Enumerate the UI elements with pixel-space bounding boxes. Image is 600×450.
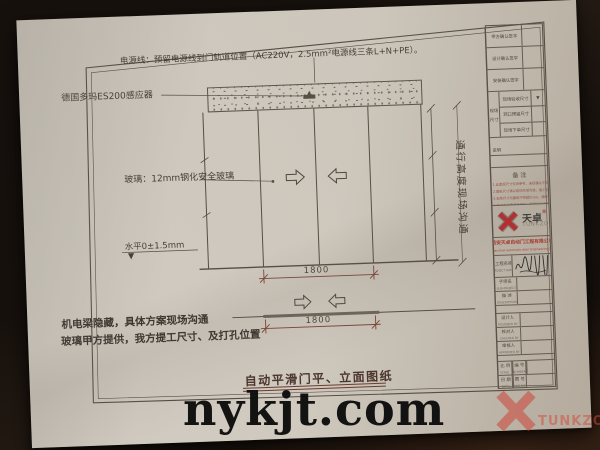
sensor-symbol xyxy=(303,91,315,99)
sub-project-label-en: SUB-PROJECT xyxy=(496,287,516,291)
scale-label: 比 例 xyxy=(500,362,510,369)
slide-arrow-left-icon xyxy=(328,168,347,183)
site-size-group-label: 现场 xyxy=(490,107,499,114)
site-size-group-label: 尺寸 xyxy=(490,116,499,123)
project-name-row: 工程名称 PROJECT NAME xyxy=(494,254,551,278)
description-label-en: DESCRIPTION xyxy=(497,301,517,305)
handwriting-signature xyxy=(513,255,551,276)
remark-row: 说明 以现场实测尺寸为准 xyxy=(490,136,547,156)
dwg-label: 图 号 xyxy=(515,375,525,382)
checker-label: 校对人 xyxy=(502,328,515,335)
site-size-label: 洞口预留尺寸 xyxy=(503,110,529,117)
designer-label-en: DESIGNED BY xyxy=(498,322,518,326)
level-symbol: ▼ xyxy=(128,251,134,260)
date-dwg-row: 日 期 DATE 图 号 DWG NO. xyxy=(499,374,555,389)
drawing-frame xyxy=(80,22,557,406)
checker-label-en: CHECKED BY xyxy=(499,336,518,340)
approver-label-en: APPROVED BY xyxy=(499,350,519,354)
remark-label: 说明 xyxy=(492,144,501,156)
company-row: 西安天卓自动门工程有限公司 Xi'an Tianzhuo automatic d… xyxy=(494,236,551,256)
number-label-en: NUMBER xyxy=(513,370,526,374)
date-label: 日 期 xyxy=(500,376,510,383)
sub-project-label: 子项名 xyxy=(499,278,512,285)
site-size-label: 现场验收尺寸 xyxy=(502,95,528,102)
watermark-text: nykjt.com xyxy=(183,382,445,436)
site-size-label: 现场下单尺寸 xyxy=(503,126,529,133)
site-size-group: 现场 尺寸 现场验收尺寸 ▼ 洞口预留尺寸 现场下单尺寸 xyxy=(488,90,546,138)
project-name-label: 工程名称 xyxy=(494,260,512,267)
designer-label: 设计人 xyxy=(501,314,514,321)
scale-label-en: SCALE xyxy=(500,371,509,375)
plan-arrow-left-icon xyxy=(329,294,345,308)
company-name-en: Xi'an Tianzhuo automatic door Engineerin… xyxy=(494,246,551,252)
signature-row: 安装确认签字 xyxy=(487,68,544,92)
signature-label: 安装确认签字 xyxy=(492,76,518,83)
approver-label: 审核人 xyxy=(502,342,515,349)
check-mark: ▼ xyxy=(536,95,540,100)
elevation-door-lines xyxy=(194,103,459,269)
paper-sheet: 电源线：预留电源线到门轨道位置（AC220V，2.5mm²电源线三条L+N+PE… xyxy=(16,0,591,448)
dim-1800-plan: 1800 xyxy=(305,315,331,326)
signature-label: 甲方确认签字 xyxy=(491,32,517,39)
description-label: 描 述 xyxy=(501,292,511,299)
logo-row: 天卓® TUNKZO xyxy=(492,204,549,238)
corner-logo-icon xyxy=(492,388,540,434)
project-name-label-en: PROJECT NAME xyxy=(494,269,513,273)
dim-1800-elevation: 1800 xyxy=(304,265,330,276)
logo-en: TUNKZO xyxy=(522,221,549,228)
notes-box: 备 注 1.此图纸尺寸仅供参考，未经确认不得施工。 2.图纸尺寸请以现场实测为准… xyxy=(491,166,548,206)
plan-view-lines xyxy=(232,309,475,318)
plan-arrow-right-icon xyxy=(295,295,311,309)
signature-row: 甲方确认签字 xyxy=(486,24,543,48)
slide-arrow-right-icon xyxy=(286,170,305,185)
photo-backdrop: 电源线：预留电源线到门轨道位置（AC220V，2.5mm²电源线三条L+N+PE… xyxy=(0,0,600,450)
registered-mark: ® xyxy=(542,209,547,215)
number-label: 编 号 xyxy=(514,361,524,368)
tunkzo-logo-icon xyxy=(496,209,521,234)
corner-watermark-brand: TUNKZO xyxy=(538,414,600,429)
site-size-row: 现场下单尺寸 xyxy=(500,121,546,138)
signature-label: 设计确认签字 xyxy=(491,54,517,61)
signature-row: 设计确认签字 xyxy=(487,46,544,70)
